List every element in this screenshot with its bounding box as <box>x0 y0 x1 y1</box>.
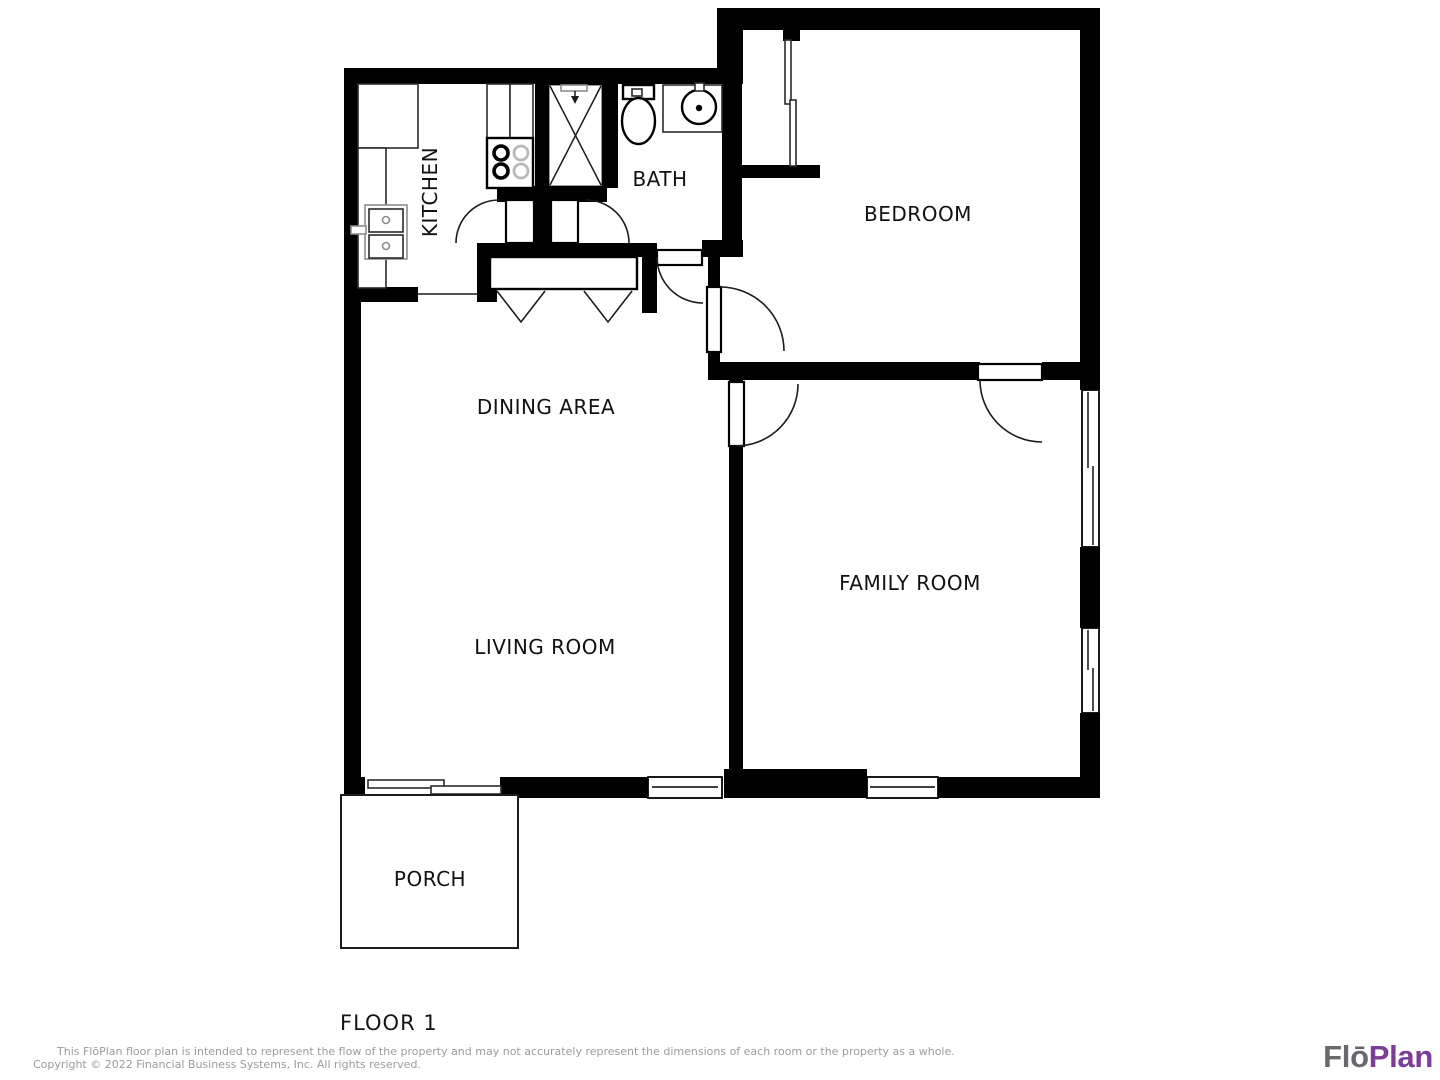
faucet-icon <box>351 226 366 234</box>
wall-segment <box>742 165 820 178</box>
window <box>1082 628 1099 713</box>
bath-door <box>551 200 629 243</box>
family-room-door-west <box>729 382 798 446</box>
wall-segment <box>500 777 648 798</box>
wall-segment <box>344 287 418 302</box>
floplan-logo-plan: Plan <box>1369 1039 1433 1074</box>
wall-segment <box>783 27 800 41</box>
wall-segment <box>724 769 867 798</box>
shower-icon <box>548 84 603 187</box>
entry-sliding-door <box>368 780 501 794</box>
dining-closet-bifold-doors <box>490 257 637 322</box>
window <box>648 777 722 798</box>
room-label-kitchen: KITCHEN <box>418 147 442 237</box>
dining-hall-door <box>657 250 703 303</box>
wall-segment <box>722 27 742 250</box>
floor-plan-page: KITCHEN BATH BEDROOM DINING AREA LIVING … <box>0 0 1440 1080</box>
disclaimer-line-1: This FlōPlan floor plan is intended to r… <box>56 1045 955 1058</box>
wall-segment <box>477 243 657 257</box>
wall-segment <box>642 243 657 313</box>
floor-label: FLOOR 1 <box>340 1011 438 1035</box>
room-label-bath: BATH <box>632 167 687 191</box>
door-leaf <box>729 382 744 446</box>
family-room-door-east <box>978 364 1042 442</box>
floor-plan-canvas: KITCHEN BATH BEDROOM DINING AREA LIVING … <box>0 0 1440 1080</box>
room-label-family-room: FAMILY ROOM <box>839 571 981 595</box>
window <box>867 777 938 798</box>
door-leaf <box>978 364 1042 380</box>
window <box>1082 390 1099 547</box>
bedroom-closet-sliding-doors <box>785 40 796 166</box>
kitchen-counter <box>510 84 533 138</box>
wall-segment <box>717 8 1100 30</box>
door-leaf <box>551 200 578 243</box>
door-swing-arc <box>736 384 798 446</box>
door-swing-arc <box>456 200 499 243</box>
room-label-bedroom: BEDROOM <box>864 202 972 226</box>
door-leaf <box>506 200 534 243</box>
wall-segment <box>708 362 980 380</box>
room-label-dining-area: DINING AREA <box>477 395 615 419</box>
floplan-logo-flo: Flō <box>1323 1039 1369 1074</box>
kitchen-cabinet <box>358 84 418 148</box>
bedroom-door <box>707 287 784 352</box>
footer: This FlōPlan floor plan is intended to r… <box>33 1039 1433 1074</box>
door-swing-arc <box>980 380 1042 442</box>
wall-segment <box>1080 547 1100 628</box>
floplan-logo: FlōPlan <box>1323 1039 1433 1074</box>
toilet-icon <box>622 85 655 144</box>
bathroom-sink-icon <box>663 83 722 132</box>
door-leaf <box>707 287 721 352</box>
door-leaf <box>657 250 702 265</box>
wall-segment <box>1080 362 1100 390</box>
disclaimer-line-2: Copyright © 2022 Financial Business Syst… <box>33 1058 421 1071</box>
wall-segment <box>1080 8 1100 372</box>
room-label-living-room: LIVING ROOM <box>474 635 616 659</box>
door-swing-arc <box>720 287 784 351</box>
wall-segment <box>344 68 742 84</box>
door-swing-arc <box>586 200 629 243</box>
room-label-porch: PORCH <box>394 867 466 891</box>
wall-segment <box>603 84 618 188</box>
kitchen-counter <box>487 84 510 138</box>
stove-icon <box>487 138 533 188</box>
kitchen-door <box>456 200 534 243</box>
wall-segment <box>938 777 1100 798</box>
wall-segment <box>708 255 720 289</box>
